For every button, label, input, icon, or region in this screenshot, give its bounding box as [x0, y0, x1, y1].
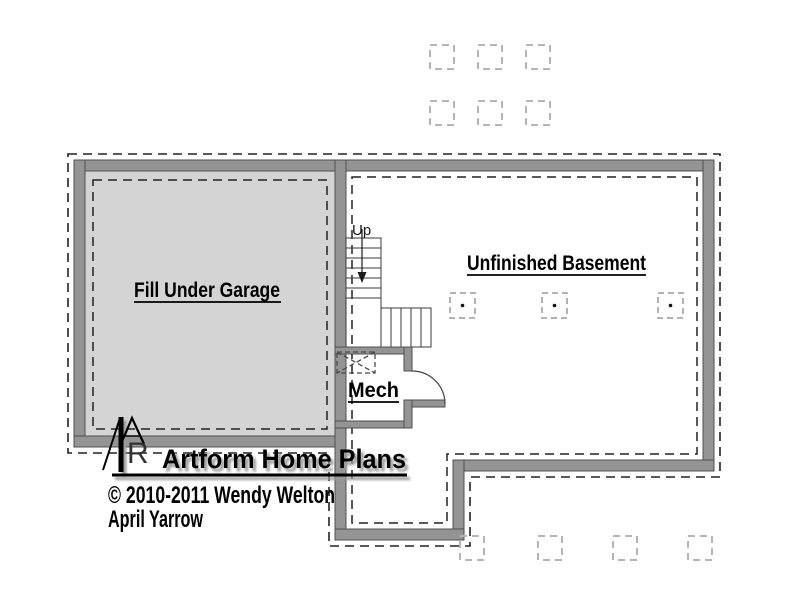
- mech-wall-right-lower: [404, 400, 412, 428]
- pier-footing: [478, 45, 502, 69]
- stair-treads: [346, 248, 421, 347]
- garage-label: Fill Under Garage: [134, 279, 280, 302]
- door-swing-arc: [412, 371, 445, 404]
- wall-basement-right: [703, 160, 714, 471]
- wall-garage-top: [74, 160, 346, 171]
- column-center-dot: [461, 304, 465, 308]
- logo-underline: [112, 474, 407, 477]
- basement-label: Unfinished Basement: [467, 252, 646, 275]
- up-label: Up: [352, 222, 371, 239]
- column-center-dot: [669, 304, 673, 308]
- pier-footing: [478, 101, 502, 125]
- basement-column-markers: [450, 293, 683, 318]
- column-center-dot: [553, 304, 557, 308]
- wall-bump-out-bottom: [335, 529, 464, 540]
- wall-bump-out-right: [453, 460, 464, 540]
- wall-basement-top: [335, 160, 714, 171]
- stair-lower-run: [381, 308, 431, 347]
- mech-wall-right-upper: [404, 347, 412, 371]
- wall-basement-bottom-right: [453, 460, 714, 471]
- porch-pier-footings-bottom: [460, 536, 712, 560]
- wall-garage-left: [74, 160, 85, 447]
- garage-slab-fill: [85, 171, 335, 436]
- pier-footing: [430, 101, 454, 125]
- monogram-r-letter: R: [127, 437, 149, 470]
- pier-footing: [526, 45, 550, 69]
- pier-footing: [688, 536, 712, 560]
- pier-footing: [430, 45, 454, 69]
- pier-footing: [526, 101, 550, 125]
- mech-label: Mech: [348, 379, 399, 402]
- staircase: Up: [346, 222, 431, 347]
- door-leaf: [412, 400, 445, 407]
- pier-footing: [613, 536, 637, 560]
- logo-text: Artform Home Plans: [162, 444, 406, 474]
- pier-footing: [538, 536, 562, 560]
- floor-plan: Up Mech Fill Under Garage Unfinished Bas…: [0, 0, 800, 600]
- copyright-line-2: April Yarrow: [108, 506, 203, 533]
- mech-wall-bottom: [335, 421, 412, 428]
- deck-pier-footings-top: [430, 45, 550, 125]
- copyright-line-1: © 2010-2011 Wendy Welton: [108, 482, 335, 509]
